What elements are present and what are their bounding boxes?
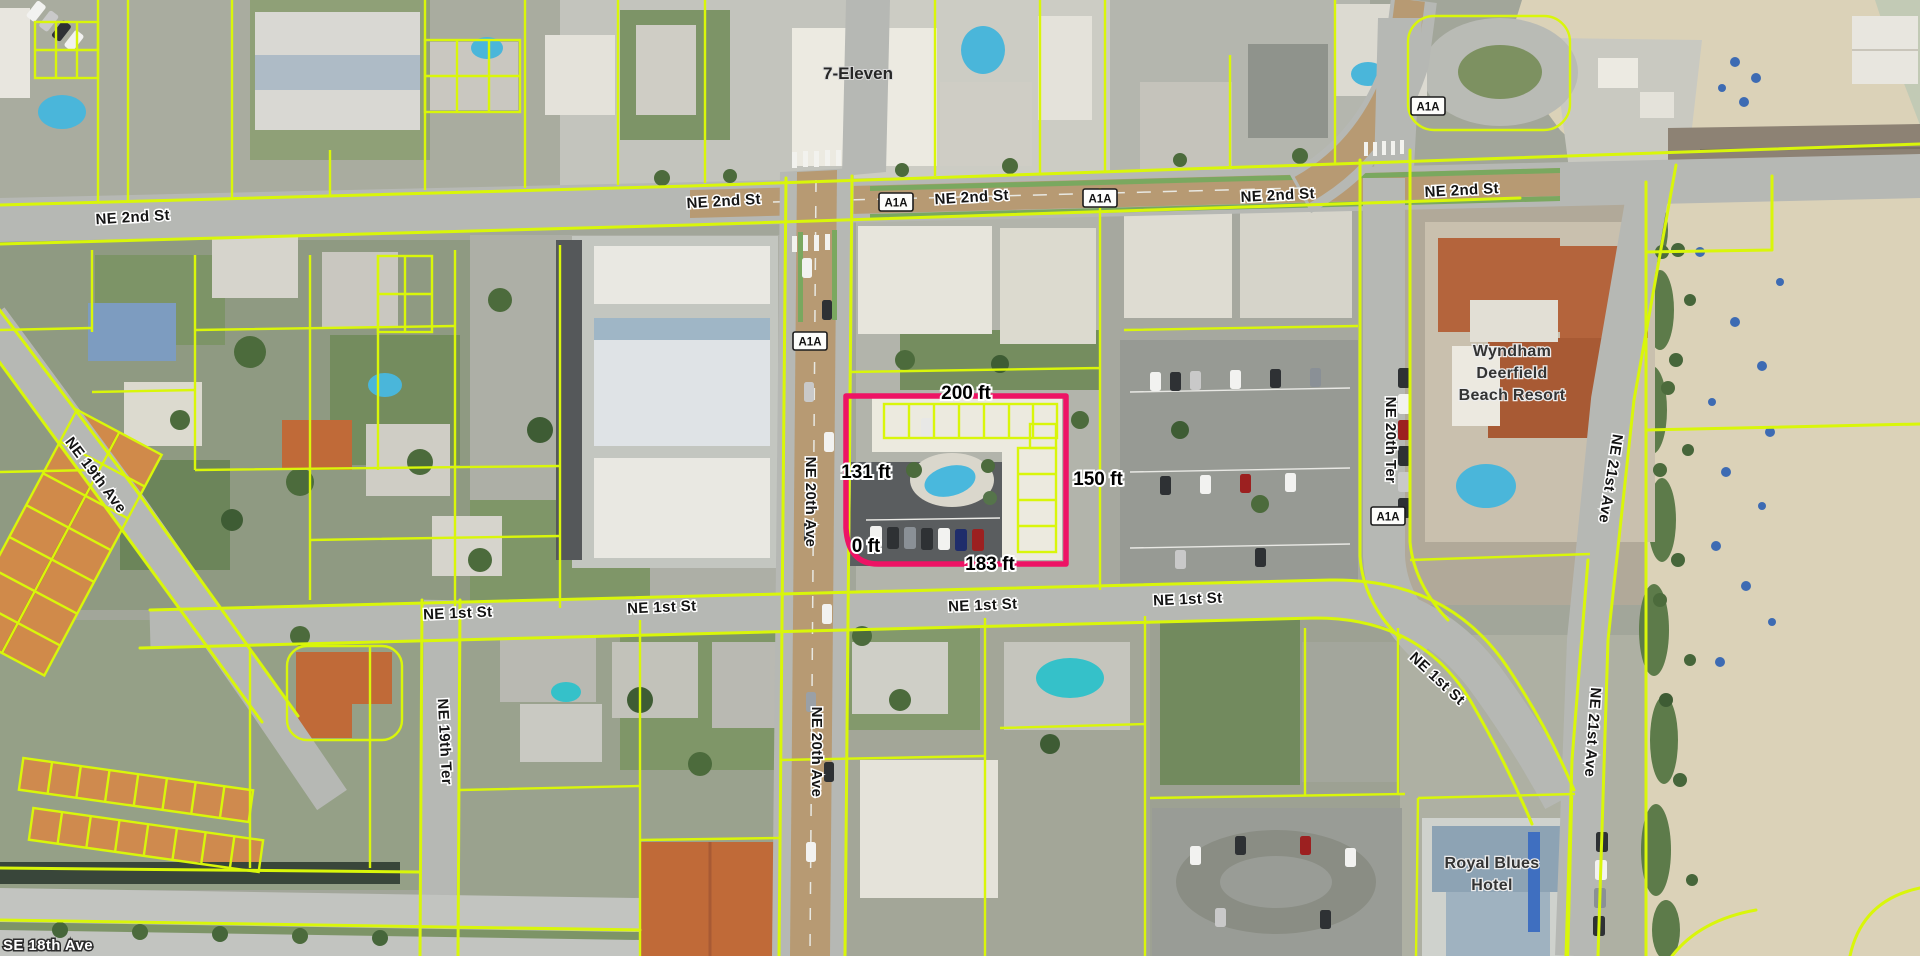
measurement-top: 200 ft <box>941 383 991 404</box>
street-label-ne-1st-st-4: NE 1st St <box>1153 589 1223 609</box>
svg-text:Beach Resort: Beach Resort <box>1459 387 1566 404</box>
measurement-corner: 0 ft <box>852 536 881 557</box>
svg-text:Hotel: Hotel <box>1471 877 1513 894</box>
map-canvas[interactable]: 200 ft 131 ft 150 ft 0 ft 183 ft NE 2nd … <box>0 0 1920 956</box>
svg-text:Wyndham: Wyndham <box>1473 343 1551 360</box>
street-label-ne-20th-ave-1: NE 20th Ave <box>802 457 819 548</box>
a1a-shield-4: A1A <box>1376 512 1399 524</box>
a1a-shield-1: A1A <box>884 198 907 210</box>
aerial-parcel-map[interactable]: 200 ft 131 ft 150 ft 0 ft 183 ft NE 2nd … <box>0 0 1920 956</box>
street-label-ne-20th-ter: NE 20th Ter <box>1382 397 1399 484</box>
street-label-ne-1st-st-2: NE 1st St <box>627 597 697 617</box>
a1a-shield-2: A1A <box>1088 194 1111 206</box>
place-label-7-eleven: 7-Eleven <box>823 64 893 83</box>
measurement-right: 150 ft <box>1073 469 1123 490</box>
street-label-ne-20th-ave-2: NE 20th Ave <box>808 707 825 798</box>
measurement-bottom: 183 ft <box>965 554 1015 575</box>
a1a-shield-5: A1A <box>1416 102 1439 114</box>
street-label-ne-1st-st-1: NE 1st St <box>423 603 493 623</box>
street-label-ne-1st-st-3: NE 1st St <box>948 595 1018 615</box>
svg-text:Royal Blues: Royal Blues <box>1445 855 1540 872</box>
a1a-shield-3: A1A <box>798 337 821 349</box>
street-label-se-18th-ave: SE 18th Ave <box>3 937 93 954</box>
measurement-left: 131 ft <box>841 462 891 483</box>
svg-text:Deerfield: Deerfield <box>1476 365 1547 382</box>
